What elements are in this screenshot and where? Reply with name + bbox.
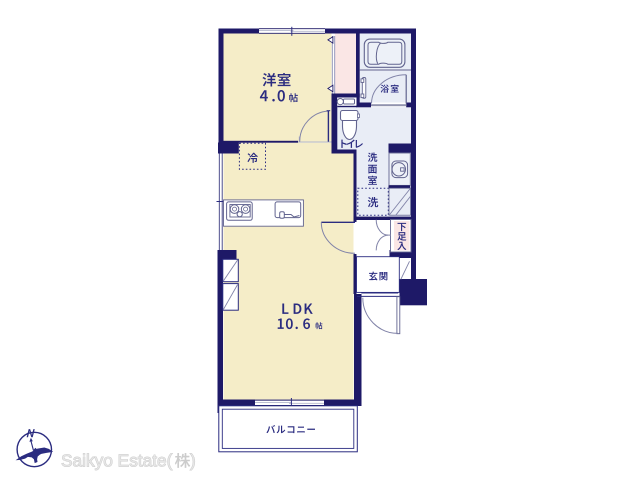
svg-text:Saikyo Estate(: Saikyo Estate( — [61, 451, 173, 471]
svg-text:): ) — [190, 451, 196, 471]
